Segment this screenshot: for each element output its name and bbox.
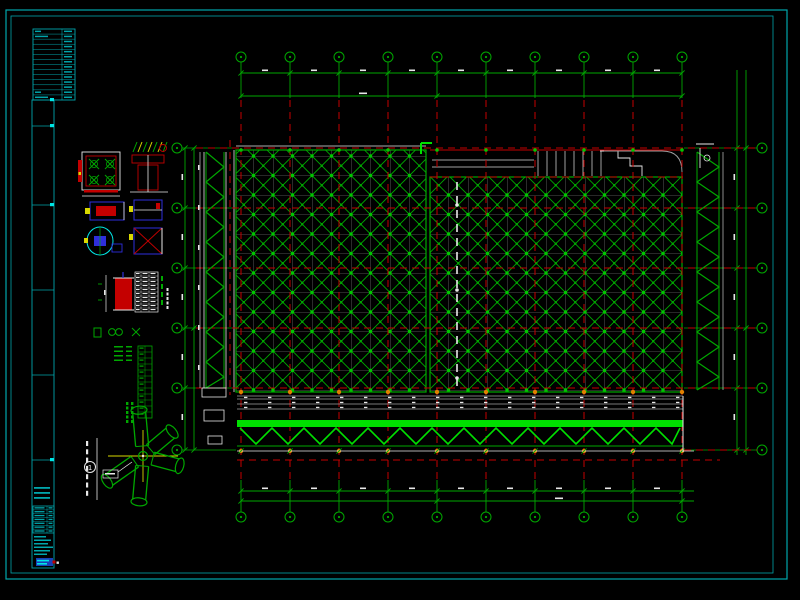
drawing-rect — [143, 293, 148, 294]
drawing-rect — [104, 290, 105, 295]
edge-node — [386, 390, 390, 394]
drawing-rect — [136, 277, 140, 278]
drawing-rect — [143, 297, 148, 298]
dim-text — [360, 70, 366, 72]
dim-text — [460, 397, 463, 398]
edge-node — [582, 148, 586, 152]
revision-cell-text — [35, 31, 41, 32]
schedule-text — [49, 519, 53, 520]
drawing-rect — [151, 309, 156, 310]
dim-text — [360, 488, 366, 490]
dim-text — [652, 397, 655, 398]
drawing-rect — [143, 273, 148, 274]
revision-cell-text — [35, 91, 41, 93]
dim-text — [508, 397, 511, 398]
grid-bubble-glyph — [761, 327, 763, 329]
drawing-rect — [140, 390, 144, 391]
note-text — [34, 497, 50, 499]
dim-text — [244, 402, 247, 403]
section-cut-dot — [455, 203, 459, 207]
dim-text — [182, 354, 184, 360]
note-text — [34, 554, 47, 556]
drawing-rect — [151, 277, 156, 278]
dim-text — [604, 397, 607, 398]
dim-text — [182, 414, 184, 420]
edge-node — [680, 148, 684, 152]
dim-text — [532, 402, 535, 403]
dim-text — [316, 407, 319, 408]
dim-text — [484, 407, 487, 408]
dim-text — [580, 407, 583, 408]
dim-text — [605, 488, 611, 490]
drawing-rect — [126, 355, 132, 357]
dim-text — [436, 397, 439, 398]
drawing-rect — [140, 372, 144, 373]
edge-node — [533, 148, 537, 152]
drawing-rect — [151, 305, 156, 306]
schedule-text — [35, 519, 45, 520]
drawing-rect — [151, 301, 156, 302]
drawing-rect — [114, 360, 123, 362]
drawing-rect — [140, 354, 144, 355]
note-text — [34, 550, 50, 552]
drawing-rect — [84, 238, 88, 243]
dim-text — [652, 402, 655, 403]
dim-text — [556, 407, 559, 408]
dim-text — [182, 234, 184, 240]
drawing-rect — [140, 348, 144, 349]
drawing-rect — [136, 281, 140, 282]
schedule-text — [49, 523, 53, 524]
note-text — [34, 536, 46, 538]
grid-bubble-glyph — [485, 56, 487, 58]
dim-text — [311, 70, 317, 72]
selected-text — [37, 560, 49, 562]
lattice-right-block — [430, 177, 682, 392]
drawing-rect — [136, 289, 140, 290]
axis-label-text — [167, 306, 169, 309]
schedule-text — [49, 507, 53, 508]
axis-label-text — [167, 297, 169, 300]
fan-label-text — [126, 407, 128, 410]
grid-bubble-glyph — [534, 516, 536, 518]
dim-text — [556, 402, 559, 403]
revision-cell-text — [64, 71, 72, 73]
callout-title-text — [86, 441, 88, 446]
dim-text — [412, 397, 415, 398]
drawing-rect — [143, 301, 148, 302]
cad-drawing-canvas: 1 — [0, 0, 800, 600]
schedule-text — [49, 511, 53, 512]
drawing-rect — [136, 301, 140, 302]
revision-cell-text — [64, 61, 72, 63]
dim-text — [340, 407, 343, 408]
drawing-rect — [136, 273, 140, 274]
dim-text — [436, 407, 439, 408]
dim-text — [508, 407, 511, 408]
edge-node — [631, 390, 635, 394]
note-text — [34, 492, 50, 494]
drawing-rect — [136, 285, 140, 286]
dim-text — [388, 407, 391, 408]
dim-text — [458, 70, 464, 72]
dim-text — [292, 402, 295, 403]
drawing-rect — [140, 402, 144, 403]
grid-bubble-glyph — [761, 267, 763, 269]
drawing-rect — [114, 351, 123, 353]
drawing-rect — [84, 190, 118, 193]
grid-bubble-glyph — [240, 516, 242, 518]
selected-text-highlight — [36, 558, 53, 566]
fan-label-text — [126, 420, 128, 423]
selected-text — [37, 563, 47, 565]
drawing-rect — [129, 234, 133, 240]
dim-text — [652, 407, 655, 408]
drawing-rect — [126, 346, 132, 348]
axis-label-text — [167, 302, 169, 305]
revision-cell-text — [64, 31, 72, 32]
section-cut-dot — [455, 288, 459, 292]
grid-bubble-glyph — [681, 516, 683, 518]
grid-bubble-glyph — [485, 516, 487, 518]
dim-text — [734, 354, 736, 360]
dim-text — [198, 245, 199, 250]
revision-cell-text — [35, 97, 48, 99]
note-text — [34, 547, 53, 549]
dim-text — [262, 70, 268, 72]
grid-bubble-glyph — [632, 516, 634, 518]
axis-label-text — [167, 288, 169, 291]
dim-text — [458, 488, 464, 490]
callout-title-text — [86, 491, 88, 496]
dim-text — [412, 407, 415, 408]
edge-node — [631, 148, 635, 152]
dim-text — [604, 407, 607, 408]
dim-text — [268, 407, 271, 408]
dim-text — [292, 397, 295, 398]
fan-label-text — [126, 411, 128, 414]
callout-number: 1 — [88, 464, 92, 472]
dim-text — [182, 294, 184, 300]
edge-node — [435, 390, 439, 394]
section-cut-dot — [455, 376, 459, 380]
grid-bubble-glyph — [338, 516, 340, 518]
dim-text — [532, 397, 535, 398]
drawing-rect — [85, 208, 90, 214]
dim-text — [436, 402, 439, 403]
schedule-text — [35, 530, 45, 531]
revision-cell-text — [64, 86, 72, 88]
dim-text — [676, 407, 679, 408]
revision-cell-text — [64, 36, 72, 38]
dim-text — [628, 407, 631, 408]
dim-text — [628, 402, 631, 403]
schedule-text — [35, 507, 45, 508]
revision-cell-text — [35, 36, 48, 38]
grid-bubble-glyph — [583, 516, 585, 518]
drawing-rect — [143, 285, 148, 286]
dim-text — [556, 70, 562, 72]
grid-bubble-glyph — [761, 449, 763, 451]
dim-text — [409, 70, 415, 72]
grid-bubble-glyph — [387, 516, 389, 518]
edge-node — [288, 148, 292, 152]
grid-bubble-glyph — [761, 207, 763, 209]
schedule-text — [35, 526, 45, 527]
strip-marker — [50, 124, 54, 127]
edge-node — [288, 390, 292, 394]
drawing-rect — [143, 309, 148, 310]
dim-text — [316, 397, 319, 398]
grid-bubble-glyph — [176, 387, 178, 389]
dim-text — [268, 402, 271, 403]
callout-title-text — [86, 474, 88, 479]
revision-cell-text — [64, 81, 72, 83]
grid-bubble-glyph — [583, 56, 585, 58]
drawing-rect — [78, 160, 82, 182]
edge-node — [239, 148, 243, 152]
revision-cell-text — [64, 76, 72, 78]
drawing-rect — [126, 351, 132, 353]
dim-text — [628, 397, 631, 398]
dim-text — [364, 397, 367, 398]
dim-text — [605, 70, 611, 72]
grid-bubble-glyph — [289, 516, 291, 518]
grid-bubble-glyph — [176, 207, 178, 209]
drawing-rect — [140, 360, 144, 361]
fan-label-text — [126, 416, 128, 419]
dim-text — [244, 397, 247, 398]
drawing-rect — [140, 396, 144, 397]
dim-text — [340, 397, 343, 398]
edge-node — [680, 390, 684, 394]
revision-cell-text — [64, 51, 72, 53]
drawing-rect — [136, 309, 140, 310]
grid-bubble-glyph — [387, 56, 389, 58]
dim-text — [460, 407, 463, 408]
dim-text — [507, 70, 513, 72]
dim-text — [676, 402, 679, 403]
revision-cell-text — [64, 46, 72, 48]
drawing-rect — [143, 281, 148, 282]
grid-bubble-glyph — [436, 516, 438, 518]
drawing-rect — [151, 297, 156, 298]
fan-label-text — [105, 473, 115, 475]
strip-marker — [50, 98, 54, 101]
dim-text — [580, 397, 583, 398]
dim-text — [359, 93, 367, 95]
grid-bubble-glyph — [761, 387, 763, 389]
dim-text — [364, 407, 367, 408]
dim-text — [460, 402, 463, 403]
schedule-text — [35, 523, 45, 524]
grid-bubble-glyph — [176, 327, 178, 329]
schedule-text — [49, 526, 53, 527]
edge-node — [386, 148, 390, 152]
dim-text — [292, 407, 295, 408]
schedule-side-label — [161, 300, 163, 305]
dim-text — [484, 402, 487, 403]
schedule-side-label — [161, 292, 163, 297]
dim-text — [311, 488, 317, 490]
dim-text — [676, 397, 679, 398]
drawing-rect — [136, 297, 140, 298]
drawing-rect — [96, 206, 116, 216]
selection-grip-white — [57, 562, 59, 564]
drawing-rect — [136, 305, 140, 306]
schedule-text — [49, 530, 53, 531]
grid-bubble-glyph — [176, 449, 178, 451]
drawing-rect — [114, 346, 123, 348]
edge-node — [582, 390, 586, 394]
dim-text — [182, 174, 184, 180]
dim-text — [198, 205, 199, 210]
callout-title-text — [86, 483, 88, 488]
fan-node-center — [142, 455, 144, 457]
revision-cell-text — [64, 56, 72, 58]
fan-label-text — [126, 402, 128, 405]
dim-text — [268, 397, 271, 398]
axis-label-text — [167, 293, 169, 296]
edge-node — [484, 148, 488, 152]
drawing-rect — [151, 289, 156, 290]
drawing-rect — [151, 273, 156, 274]
dim-text — [734, 294, 736, 300]
grid-bubble-glyph — [176, 147, 178, 149]
dim-text — [604, 402, 607, 403]
drawing-rect — [79, 172, 82, 175]
grid-bubble-glyph — [632, 56, 634, 58]
drawing-rect — [129, 206, 133, 212]
dim-text — [388, 402, 391, 403]
dim-text — [388, 397, 391, 398]
selection-grip-red — [53, 561, 56, 564]
dim-text — [555, 498, 563, 500]
drawing-rect — [140, 384, 144, 385]
grid-bubble-glyph — [240, 56, 242, 58]
revision-cell-text — [64, 91, 72, 93]
drawing-rect — [140, 366, 144, 367]
dim-text — [654, 70, 660, 72]
edge-node — [337, 390, 341, 394]
edge-node — [533, 390, 537, 394]
dim-text — [198, 325, 199, 330]
dim-text — [556, 397, 559, 398]
strip-marker — [50, 458, 54, 461]
drawing-rect — [151, 293, 156, 294]
drawing-rect — [140, 378, 144, 379]
dim-text — [484, 397, 487, 398]
schedule-side-label — [161, 284, 163, 289]
dim-text — [734, 234, 736, 240]
drawing-rect — [156, 203, 160, 209]
dim-text — [316, 402, 319, 403]
dim-text — [198, 165, 199, 170]
schedule-side-label — [161, 276, 163, 281]
grid-bubble-glyph — [338, 56, 340, 58]
lattice-left-block — [236, 150, 426, 392]
grid-bubble-glyph — [289, 56, 291, 58]
revision-cell-text — [64, 41, 72, 43]
dim-text — [532, 407, 535, 408]
strip-marker — [50, 203, 54, 206]
drawing-rect — [143, 289, 148, 290]
note-text — [34, 487, 50, 489]
fan-label-text — [131, 402, 133, 405]
dim-text — [409, 488, 415, 490]
drawing-rect — [151, 281, 156, 282]
dim-text — [364, 402, 367, 403]
edge-node — [435, 148, 439, 152]
grid-bubble-glyph — [681, 56, 683, 58]
dim-text — [556, 488, 562, 490]
dim-text — [580, 402, 583, 403]
grid-bubble-glyph — [761, 147, 763, 149]
drawing-rect — [143, 305, 148, 306]
truss-top-chord — [237, 420, 683, 427]
dim-text — [340, 402, 343, 403]
drawing-rect — [151, 285, 156, 286]
dim-text — [412, 402, 415, 403]
grid-bubble-glyph — [534, 56, 536, 58]
dim-text — [262, 488, 268, 490]
dim-text — [734, 414, 736, 420]
schedule-text — [49, 515, 53, 516]
schedule-text — [35, 511, 45, 512]
drawing-rect — [126, 360, 132, 362]
note-text — [34, 540, 51, 542]
schedule-text — [35, 515, 45, 516]
dim-text — [244, 407, 247, 408]
drawing-rect — [140, 408, 144, 409]
edge-node — [239, 390, 243, 394]
edge-node — [337, 148, 341, 152]
dim-text — [508, 402, 511, 403]
note-text — [34, 543, 48, 545]
callout-title-text — [86, 449, 88, 454]
drawing-rect — [114, 355, 123, 357]
grid-bubble-glyph — [436, 56, 438, 58]
edge-node — [484, 390, 488, 394]
revision-cell-text — [64, 97, 72, 99]
drawing-rect — [136, 293, 140, 294]
dim-text — [654, 488, 660, 490]
cylinder-body — [115, 278, 132, 310]
dim-text — [198, 365, 199, 370]
dim-text — [507, 488, 513, 490]
grid-bubble-glyph — [176, 267, 178, 269]
drawing-rect — [143, 277, 148, 278]
dim-text — [734, 174, 736, 180]
revision-cell-text — [64, 66, 72, 68]
dim-text — [198, 285, 199, 290]
